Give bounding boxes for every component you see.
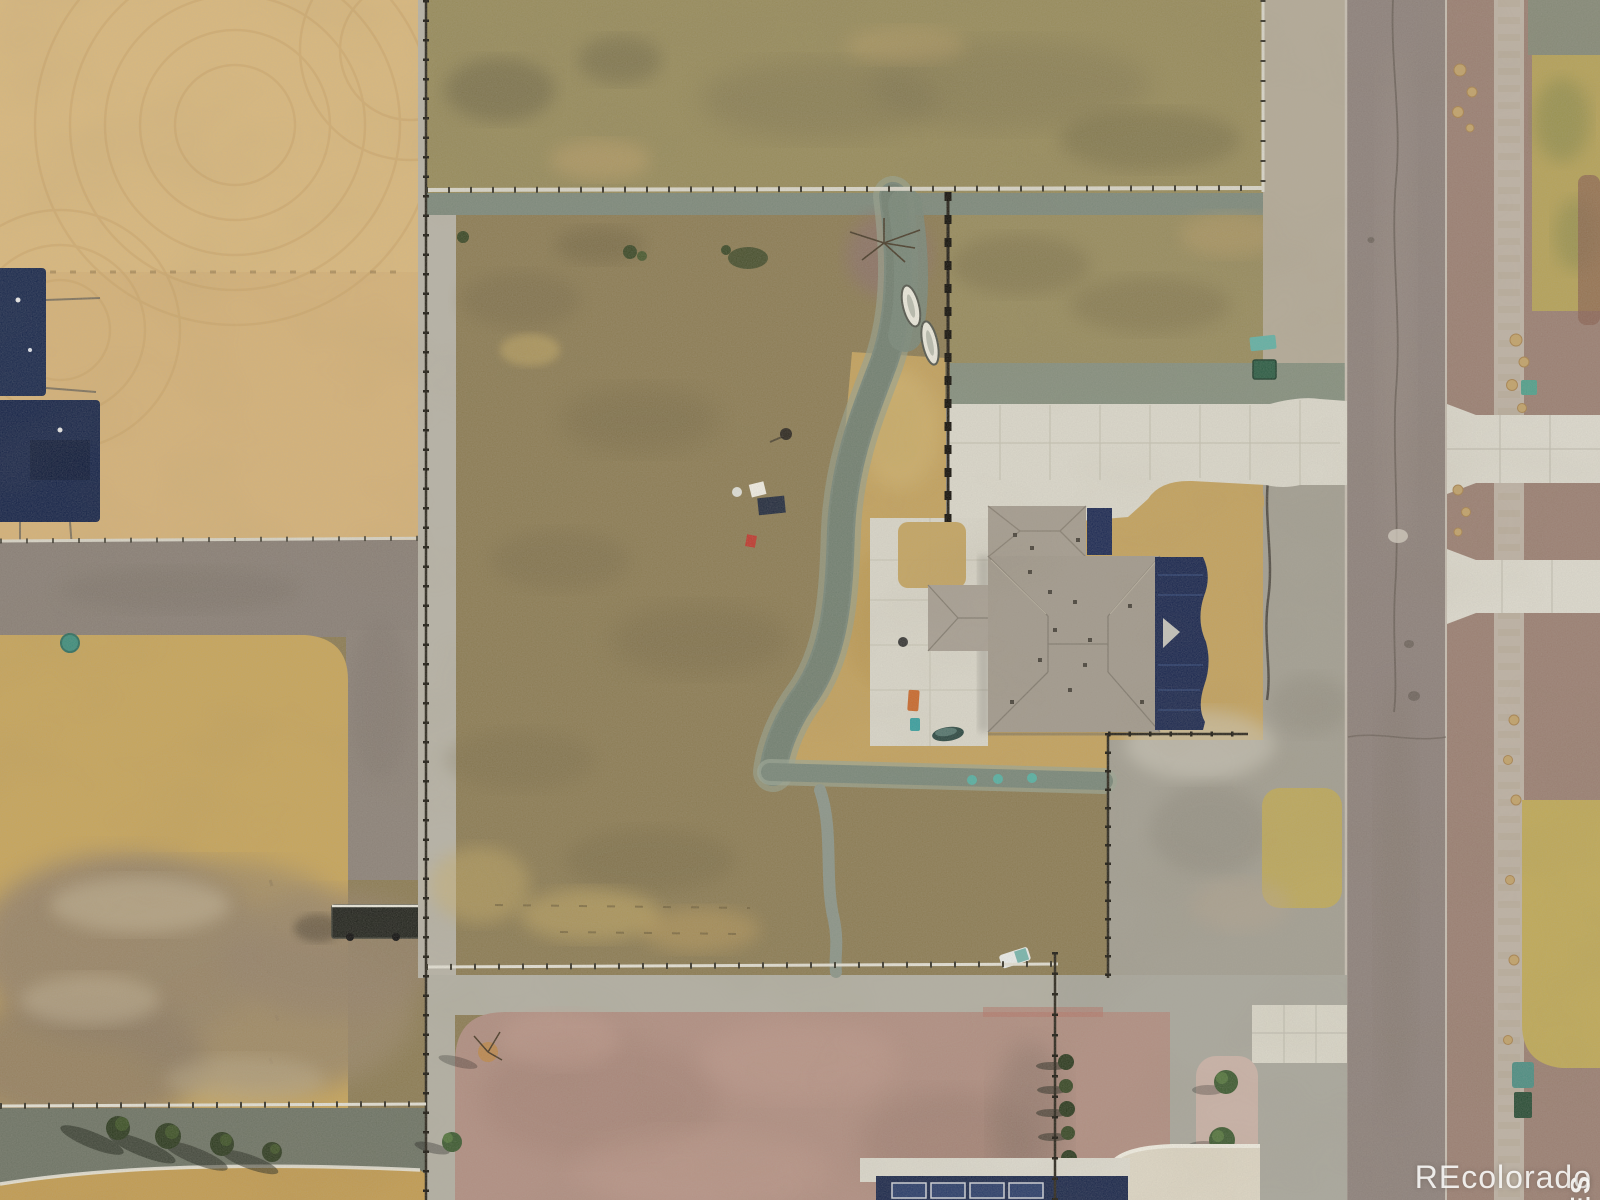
watermark-attribution: © IRES bbox=[1565, 1174, 1596, 1200]
aerial-photo: REcolorado © IRES bbox=[0, 0, 1600, 1200]
photo-grain-overlay bbox=[0, 0, 1600, 1200]
aerial-scene bbox=[0, 0, 1600, 1200]
